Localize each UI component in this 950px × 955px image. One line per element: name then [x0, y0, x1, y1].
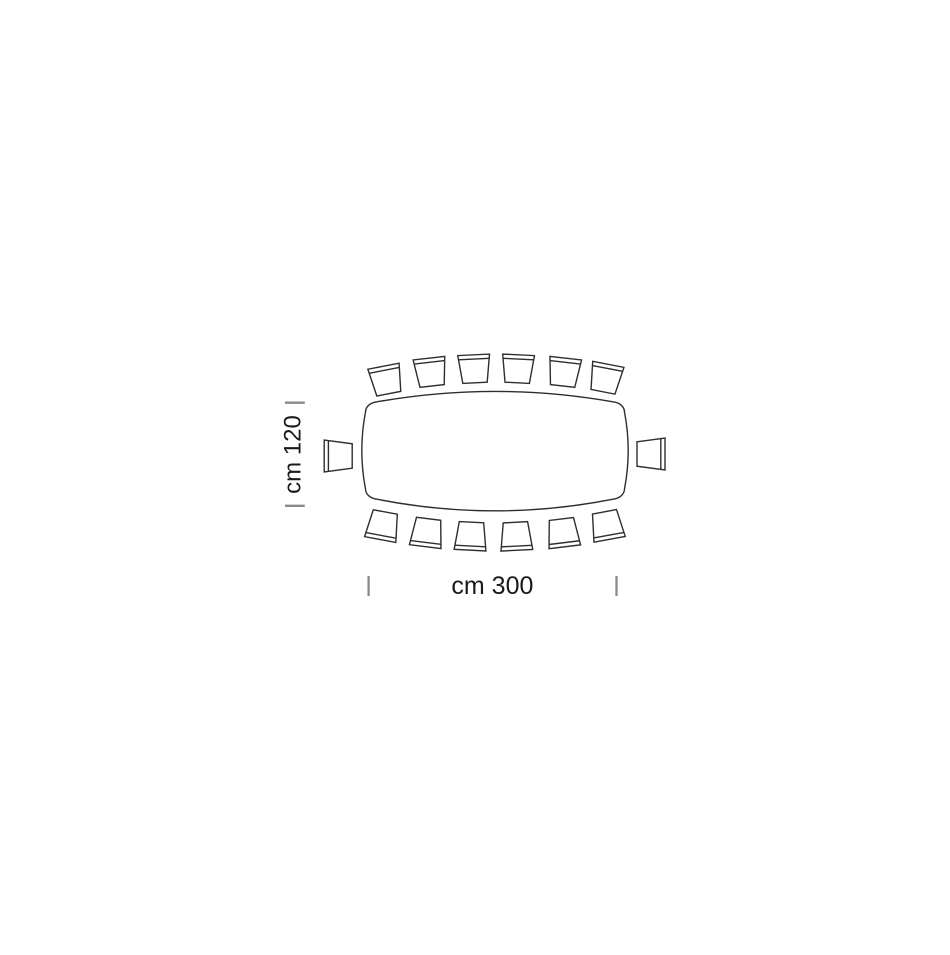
svg-text:cm 120: cm 120 [279, 415, 306, 494]
svg-text:cm 300: cm 300 [451, 572, 533, 600]
